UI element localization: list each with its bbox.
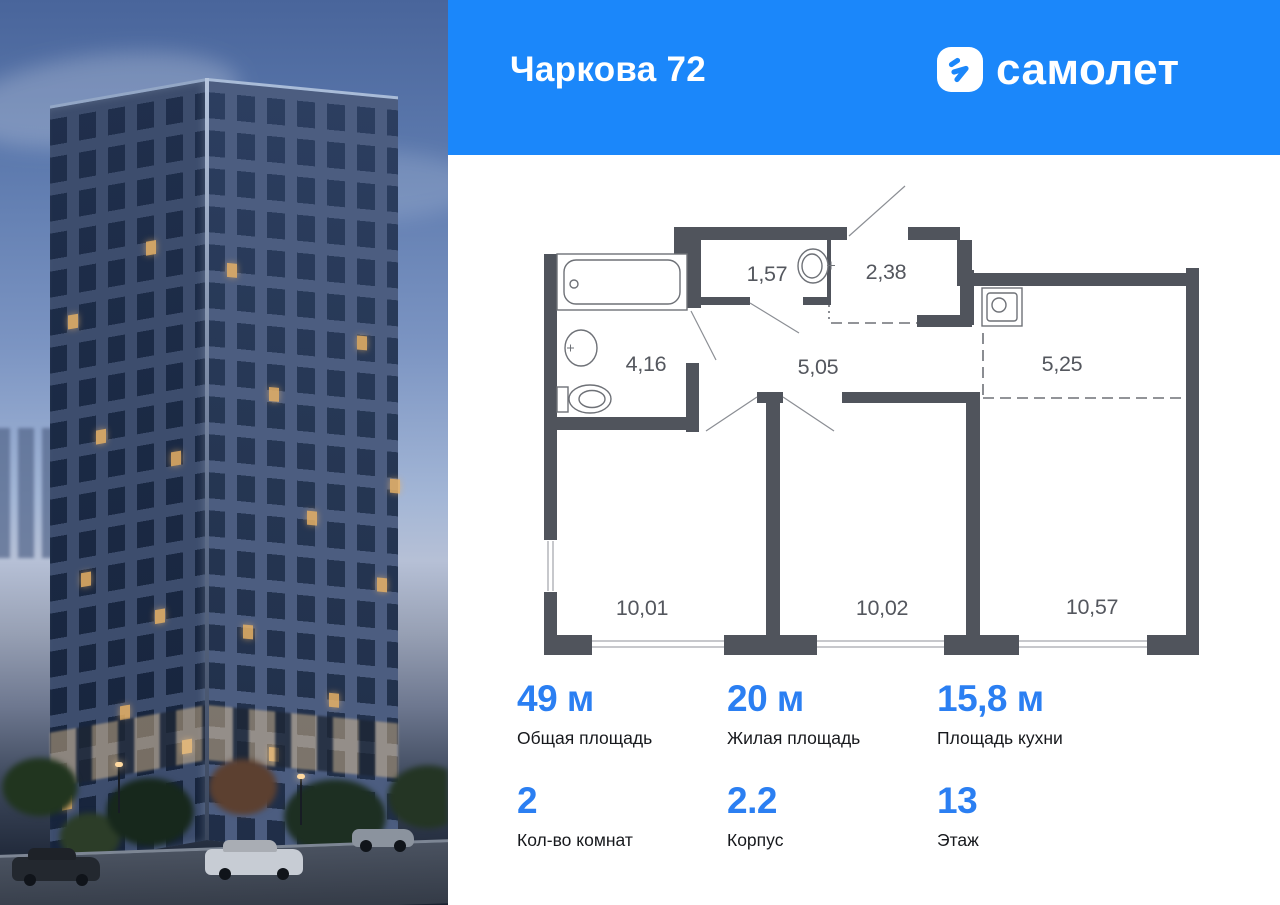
stat-value: 2 xyxy=(517,782,722,819)
room-area-bedroom-1: 10,01 xyxy=(616,596,668,620)
brand-name: самолет xyxy=(996,48,1180,92)
stat-floor-number: 13 Этаж xyxy=(937,782,1142,851)
room-area-bathroom: 4,16 xyxy=(626,352,667,376)
stat-value: 13 xyxy=(937,782,1142,819)
street-lamp xyxy=(118,767,120,813)
building-photo xyxy=(0,0,448,905)
stat-label: Площадь кухни xyxy=(937,728,1142,749)
info-panel: Чаркова 72 самолет xyxy=(448,0,1280,905)
card-header: Чаркова 72 самолет xyxy=(448,0,1280,155)
car xyxy=(352,829,414,847)
stat-total-area: 49 м Общая площадь xyxy=(517,680,722,749)
stat-living-area: 20 м Жилая площадь xyxy=(727,680,932,749)
floor-plan: 1,57 2,38 4,16 5,05 5,25 10,01 10,02 10,… xyxy=(533,183,1205,677)
room-area-corridor: 5,05 xyxy=(798,355,839,379)
room-area-bedroom-2: 10,02 xyxy=(856,596,908,620)
tower-corner-edge xyxy=(205,78,209,840)
stat-label: Общая площадь xyxy=(517,728,722,749)
room-area-hall-entry: 1,57 xyxy=(747,262,788,286)
samolet-logo-icon xyxy=(937,47,983,92)
stat-label: Кол-во комнат xyxy=(517,830,722,851)
samolet-logo: самолет xyxy=(937,47,1180,92)
stat-building-number: 2.2 Корпус xyxy=(727,782,932,851)
room-area-living-kitchen: 10,57 xyxy=(1066,595,1118,619)
listing-card: Чаркова 72 самолет xyxy=(0,0,1280,905)
stat-value: 49 м xyxy=(517,680,722,717)
street-lamp xyxy=(300,779,302,825)
room-area-labels: 1,57 2,38 4,16 5,05 5,25 10,01 10,02 10,… xyxy=(616,260,1118,620)
stat-label: Корпус xyxy=(727,830,932,851)
stat-kitchen-area: 15,8 м Площадь кухни xyxy=(937,680,1142,749)
stat-value: 20 м xyxy=(727,680,932,717)
project-title: Чаркова 72 xyxy=(510,50,706,90)
plan-fixtures xyxy=(557,249,1022,413)
toilet xyxy=(557,387,568,412)
room-area-wardrobe: 2,38 xyxy=(866,260,907,284)
stat-value: 15,8 м xyxy=(937,680,1142,717)
car xyxy=(12,857,100,881)
stat-label: Жилая площадь xyxy=(727,728,932,749)
room-area-kitchen-zone: 5,25 xyxy=(1042,352,1083,376)
car xyxy=(205,849,303,875)
stat-rooms-count: 2 Кол-во комнат xyxy=(517,782,722,851)
stat-label: Этаж xyxy=(937,830,1142,851)
stat-value: 2.2 xyxy=(727,782,932,819)
